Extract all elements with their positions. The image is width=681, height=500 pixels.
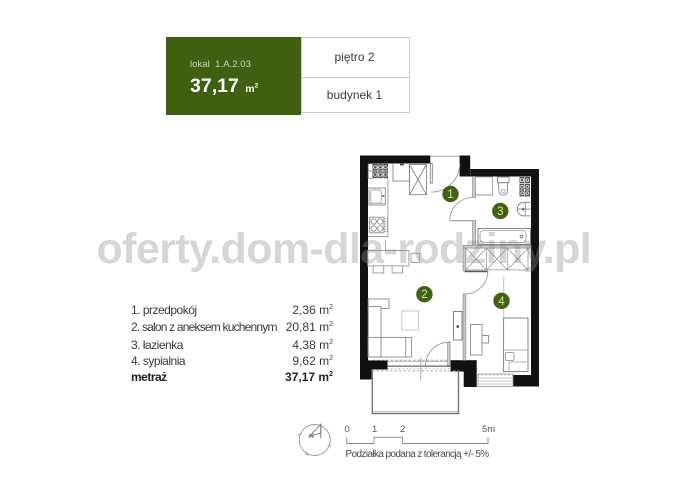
svg-text:4: 4 xyxy=(498,296,505,308)
svg-text:1: 1 xyxy=(447,189,453,201)
svg-text:3: 3 xyxy=(497,206,503,218)
svg-text:2: 2 xyxy=(421,289,427,301)
